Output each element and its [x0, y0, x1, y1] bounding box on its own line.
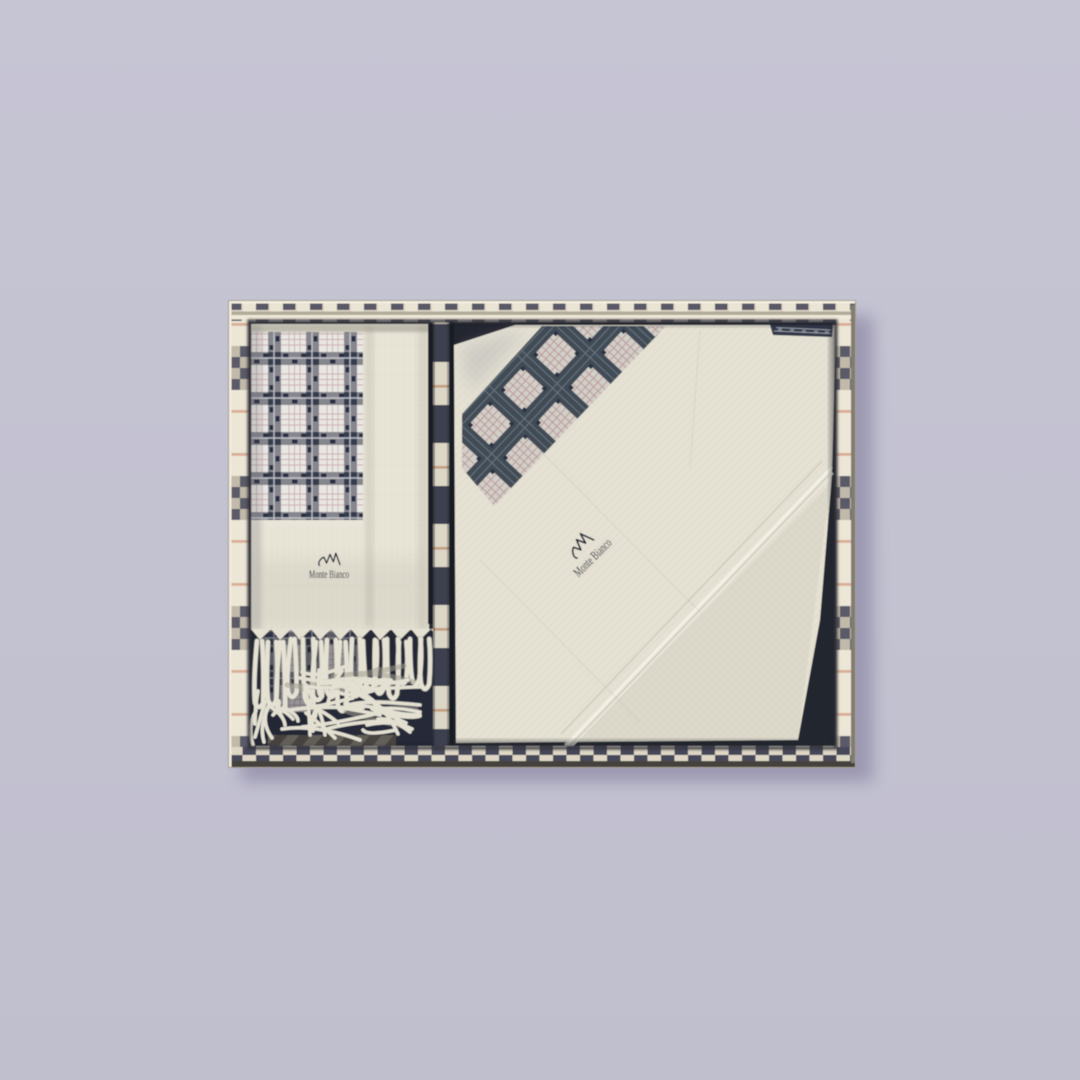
svg-text:Monte Bianco: Monte Bianco: [309, 567, 349, 581]
